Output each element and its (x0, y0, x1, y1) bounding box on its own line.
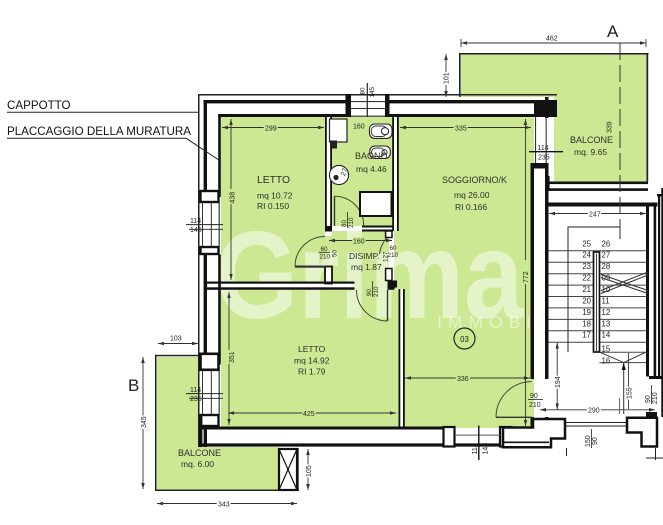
svg-text:RI 1.79: RI 1.79 (298, 367, 326, 377)
svg-text:145: 145 (483, 443, 490, 455)
svg-text:28: 28 (602, 262, 611, 271)
svg-text:15: 15 (602, 345, 611, 354)
svg-text:17: 17 (582, 331, 591, 340)
svg-text:12: 12 (602, 308, 611, 317)
svg-text:90: 90 (645, 395, 652, 403)
svg-text:03: 03 (460, 335, 469, 344)
svg-text:425: 425 (303, 411, 315, 418)
svg-text:LETTO: LETTO (257, 175, 290, 186)
svg-text:mq 14.92: mq 14.92 (294, 356, 330, 366)
svg-text:mq. 9.65: mq. 9.65 (574, 147, 607, 157)
svg-text:90: 90 (592, 437, 599, 445)
svg-text:103: 103 (170, 336, 182, 343)
svg-text:290: 290 (588, 408, 600, 415)
svg-text:11: 11 (602, 296, 610, 305)
svg-text:23: 23 (582, 262, 591, 271)
svg-text:B: B (128, 376, 139, 395)
svg-text:155: 155 (627, 387, 634, 399)
svg-text:mq. 6.00: mq. 6.00 (181, 459, 214, 469)
svg-text:A: A (607, 22, 619, 41)
svg-text:mq 4.46: mq 4.46 (356, 164, 387, 174)
svg-text:114: 114 (190, 218, 201, 225)
svg-text:CAPPOTTO: CAPPOTTO (7, 99, 71, 112)
svg-text:145: 145 (190, 227, 202, 234)
svg-text:462: 462 (546, 36, 558, 43)
svg-text:772: 772 (523, 271, 530, 283)
svg-text:24: 24 (582, 251, 591, 260)
svg-text:114: 114 (538, 145, 549, 152)
svg-text:299: 299 (265, 126, 277, 133)
svg-text:90: 90 (366, 288, 373, 296)
svg-text:345: 345 (141, 416, 148, 428)
svg-text:150: 150 (585, 435, 592, 447)
svg-text:80: 80 (359, 87, 366, 95)
svg-text:14: 14 (602, 331, 611, 340)
svg-text:mq 10.72: mq 10.72 (257, 191, 293, 201)
svg-text:16: 16 (602, 356, 611, 365)
svg-text:235: 235 (538, 155, 550, 162)
svg-text:335: 335 (455, 126, 467, 133)
svg-text:BALCONE: BALCONE (570, 135, 613, 145)
svg-text:LETTO: LETTO (298, 344, 326, 354)
svg-text:114: 114 (190, 387, 201, 394)
svg-text:210: 210 (373, 286, 380, 297)
svg-text:194: 194 (555, 376, 562, 388)
svg-text:13: 13 (602, 319, 611, 328)
svg-text:09: 09 (602, 274, 611, 283)
svg-text:145: 145 (369, 86, 376, 97)
svg-text:mq 26.00: mq 26.00 (454, 190, 490, 200)
svg-text:60: 60 (390, 245, 398, 252)
svg-text:247: 247 (589, 212, 601, 219)
svg-text:BALCONE: BALCONE (178, 448, 221, 458)
svg-text:21: 21 (582, 285, 591, 294)
svg-text:438: 438 (230, 192, 237, 204)
svg-text:114: 114 (472, 443, 479, 454)
svg-text:343: 343 (218, 502, 230, 509)
svg-text:160: 160 (353, 124, 365, 131)
svg-text:80: 80 (341, 219, 348, 227)
svg-text:DISIMP.: DISIMP. (349, 251, 380, 261)
svg-text:SOGGIORNO/K: SOGGIORNO/K (442, 175, 507, 185)
svg-text:210: 210 (388, 252, 399, 259)
svg-text:210: 210 (529, 402, 541, 409)
svg-text:19: 19 (582, 308, 591, 317)
svg-text:25: 25 (582, 239, 591, 248)
svg-text:RI 0.166: RI 0.166 (455, 202, 487, 212)
svg-text:101: 101 (444, 72, 451, 84)
svg-text:105: 105 (306, 465, 313, 477)
svg-text:RI 0.150: RI 0.150 (257, 201, 289, 211)
svg-text:210: 210 (348, 217, 355, 228)
svg-text:10: 10 (602, 285, 611, 294)
svg-text:mq 1.87: mq 1.87 (351, 262, 382, 272)
svg-text:PLACCAGGIO DELLA MURATURA: PLACCAGGIO DELLA MURATURA (7, 125, 191, 138)
svg-text:BAGNO: BAGNO (355, 151, 388, 161)
svg-text:210: 210 (652, 392, 659, 404)
svg-text:210: 210 (320, 254, 331, 261)
svg-text:235: 235 (190, 396, 202, 403)
svg-text:50: 50 (332, 249, 339, 257)
svg-text:336: 336 (457, 376, 469, 383)
svg-text:90: 90 (530, 393, 538, 400)
svg-text:339: 339 (607, 121, 614, 133)
svg-text:351: 351 (229, 351, 236, 363)
svg-text:160: 160 (353, 239, 365, 246)
svg-text:26: 26 (602, 239, 611, 248)
svg-text:27: 27 (602, 251, 611, 260)
svg-text:20: 20 (582, 296, 591, 305)
svg-text:18: 18 (582, 319, 591, 328)
svg-text:22: 22 (582, 274, 591, 283)
